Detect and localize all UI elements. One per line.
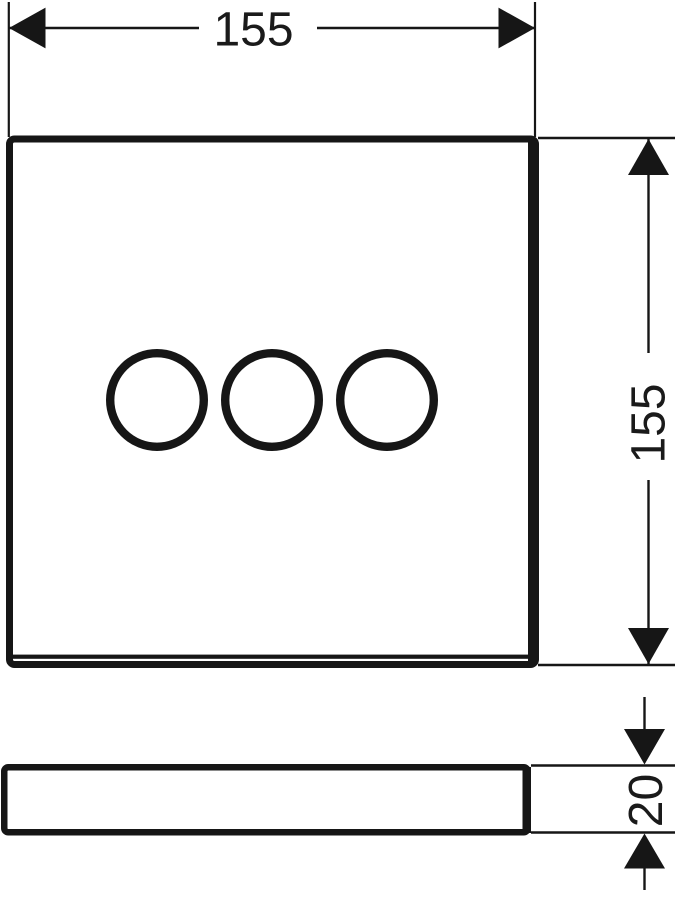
svg-text:155: 155 xyxy=(213,4,293,57)
svg-text:20: 20 xyxy=(620,774,673,827)
svg-text:155: 155 xyxy=(623,383,676,463)
